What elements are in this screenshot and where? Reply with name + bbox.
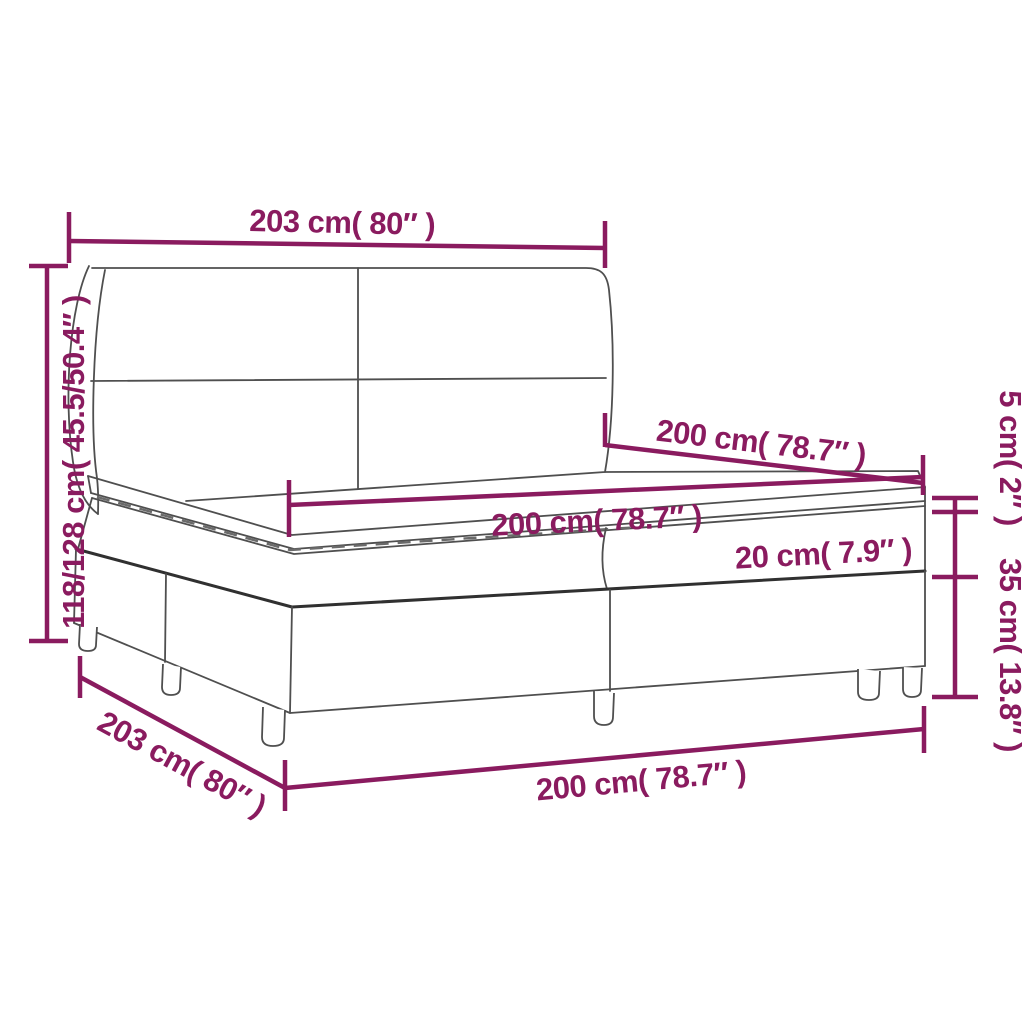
bed-leg xyxy=(162,664,181,695)
dimension-base-width: 203 cm( 80″ ) xyxy=(80,656,285,823)
headboard-seam-horizontal xyxy=(91,378,606,381)
dimension-headboard-width: 203 cm( 80″ ) xyxy=(69,203,605,268)
headboard-width-label: 203 cm( 80″ ) xyxy=(249,203,436,242)
box-spring-base xyxy=(74,549,925,713)
base-height-label: 35 cm( 13.8″ ) xyxy=(993,558,1024,752)
base-width-label: 203 cm( 80″ ) xyxy=(92,704,272,823)
total-height-label: 118/128 cm( 45.5/50.4″ ) xyxy=(56,295,91,629)
bed-drawing xyxy=(68,266,925,746)
bed-leg xyxy=(262,707,285,746)
dimension-line xyxy=(69,241,605,248)
headboard-panel xyxy=(92,268,613,501)
dimension-line xyxy=(289,477,923,505)
bed-leg xyxy=(858,669,880,700)
mattress-height-label: 20 cm( 7.9″ ) xyxy=(734,531,913,575)
bed-leg xyxy=(594,691,614,725)
topper-height-label: 5 cm( 2″ ) xyxy=(993,390,1024,526)
bed-dimension-diagram: 203 cm( 80″ ) 118/128 cm( 45.5/50.4″ ) 5… xyxy=(0,0,1024,1024)
base-corner-edge xyxy=(290,607,292,713)
dimension-right-stack: 5 cm( 2″ ) 35 cm( 13.8″ ) xyxy=(932,390,1024,752)
headboard xyxy=(68,266,612,514)
dimension-mattress-height: 20 cm( 7.9″ ) xyxy=(734,531,913,575)
mattress-length-front-label: 200 cm( 78.7″ ) xyxy=(490,498,702,543)
dimension-total-height: 118/128 cm( 45.5/50.4″ ) xyxy=(29,266,91,641)
bed-leg xyxy=(903,667,922,697)
dimension-lines: 203 cm( 80″ ) 118/128 cm( 45.5/50.4″ ) 5… xyxy=(29,203,1024,823)
base-seam-head-face xyxy=(165,574,166,662)
base-bottom-edge xyxy=(74,623,925,713)
diagram-canvas: 203 cm( 80″ ) 118/128 cm( 45.5/50.4″ ) 5… xyxy=(0,0,1024,1024)
bed-legs xyxy=(79,624,922,746)
